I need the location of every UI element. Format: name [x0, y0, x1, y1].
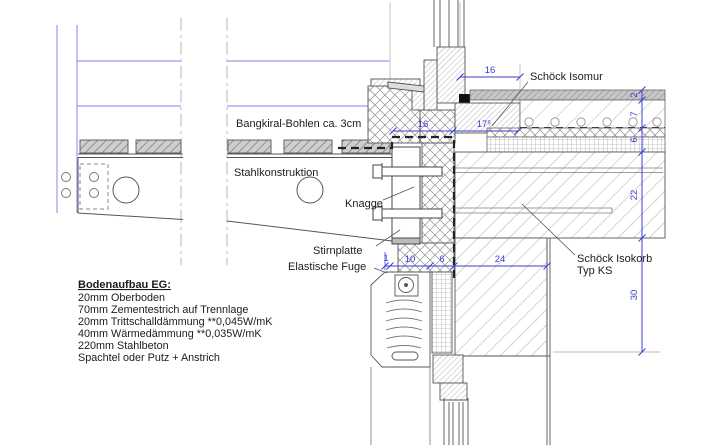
beam-hole [113, 177, 139, 203]
window-frame [424, 60, 437, 110]
reveal-insulation [432, 272, 452, 353]
isomur-seal-block [459, 94, 470, 103]
label-elastische-fuge: Elastische Fuge [288, 261, 366, 273]
dim-top-16: 16 [485, 65, 496, 76]
roller-shutter-box [371, 272, 430, 367]
window-frame [433, 355, 463, 383]
dim-bot-10: 10 [405, 254, 416, 265]
deck-plank [80, 140, 128, 153]
layer-estrich [520, 100, 665, 128]
dim-right-30: 30 [629, 290, 640, 301]
deck-plank [228, 140, 271, 153]
deck-plank [136, 140, 181, 153]
beam-bottom-edge [78, 213, 183, 220]
label-stahlkonstruktion: Stahlkonstruktion [234, 167, 318, 179]
legend-item: 20mm Oberboden [78, 292, 165, 304]
dim-right-7: 7 [629, 111, 640, 116]
detail-section-svg: 16 16 17⁵ 1 10 6 24 2 7 6 22 30 Bangkira… [0, 0, 724, 445]
deck-plank [284, 140, 332, 153]
deck-left-view [62, 140, 184, 220]
dim-right-2: 2 [629, 92, 640, 97]
beam-bottom-edge [227, 221, 392, 241]
dim-bot-1: 1 [383, 253, 388, 264]
legend-item: 220mm Stahlbeton [78, 340, 169, 352]
deck-right-view [227, 140, 392, 241]
label-schoeck-isokorb: Schöck Isokorb [577, 253, 652, 265]
legend-item: 40mm Wärmedämmung **0,035W/mK [78, 328, 262, 340]
label-schoeck-isomur: Schöck Isomur [530, 71, 603, 83]
window-frame [440, 383, 467, 400]
dim-bot-6: 6 [439, 254, 444, 265]
beam-hole [297, 177, 323, 203]
layer-trittschall [487, 128, 665, 137]
legend-item: 70mm Zementestrich auf Trennlage [78, 304, 248, 316]
floor-buildup-legend: Bodenaufbau EG: 20mm Oberboden 70mm Zeme… [78, 279, 273, 364]
dim-mid-16: 16 [418, 119, 429, 130]
label-bangkirai: Bangkiral-Bohlen ca. 3cm [236, 118, 361, 130]
bolt-group-outline [80, 164, 108, 209]
lower-window [371, 272, 468, 445]
legend-item: Spachtel oder Putz + Anstrich [78, 352, 220, 364]
cad-detail-drawing: 16 16 17⁵ 1 10 6 24 2 7 6 22 30 Bangkira… [0, 0, 724, 445]
legend-title: Bodenaufbau EG: [78, 279, 171, 291]
dim-right-6: 6 [629, 137, 640, 142]
label-stirnplatte: Stirnplatte [313, 245, 363, 257]
dim-mid-17: 17⁵ [477, 119, 492, 130]
label-knagge: Knagge [345, 198, 383, 210]
legend-item: 20mm Trittschalldämmung **0,045W/mK [78, 316, 273, 328]
stirnplatte-plate [392, 147, 420, 243]
dim-right-22: 22 [629, 190, 640, 201]
dim-bot-24: 24 [495, 254, 506, 265]
perimeter-insulation-strip [422, 143, 454, 243]
label-isokorb-typ: Typ KS [577, 265, 612, 277]
